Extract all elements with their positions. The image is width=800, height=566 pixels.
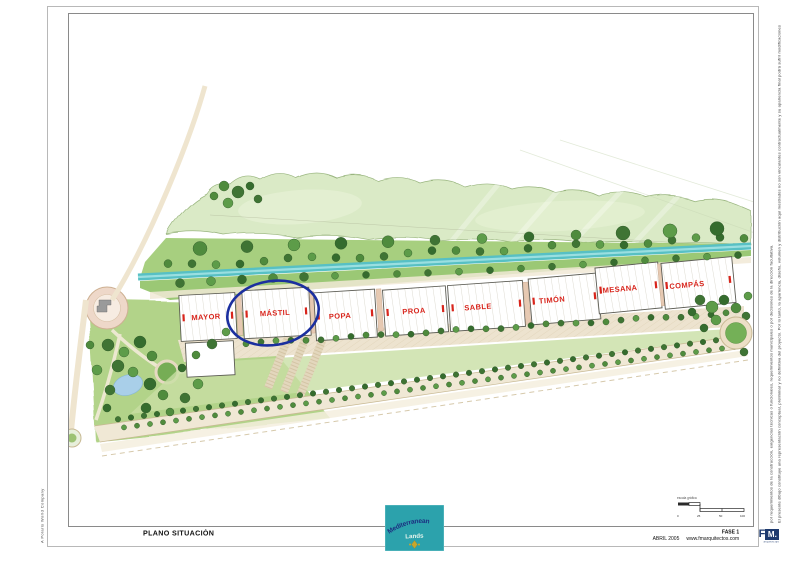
building-label-sable: SABLE [464, 302, 492, 313]
building-label-mastil: MÁSTIL [260, 308, 291, 319]
architect-logo-f: F [759, 528, 766, 540]
building-label-popa: POPA [329, 311, 352, 321]
drawing-sheet: escala gráfica 0 25 50 100 MAYOR MÁSTIL … [0, 0, 800, 566]
architect-logo-subtext: arquitectos [764, 540, 775, 545]
mediterranean-lands-logo: Mediterranean Lands [385, 505, 444, 551]
company-vertical-text: A Polaris World Company [40, 488, 45, 543]
sheet-info: FASE 1 ABRIL 2005www.fmarquitectos.com [652, 529, 739, 542]
building-label-mayor: MAYOR [191, 312, 221, 323]
building-label-proa: PROA [402, 306, 426, 317]
sheet-title: PLANO SITUACIÓN [143, 529, 214, 537]
date-label: ABRIL 2005 [652, 536, 679, 542]
disclaimer-line-2: por requerimientos de la construcción, e… [769, 245, 774, 523]
architect-logo-m: M. [765, 529, 779, 540]
drawing-frame [68, 13, 754, 527]
website-link[interactable]: www.fmarquitectos.com [686, 536, 739, 542]
architect-logo: FM. arquitectos [755, 528, 783, 552]
date-and-site: ABRIL 2005www.fmarquitectos.com [652, 536, 739, 543]
logo-text-line2: Lands [405, 533, 424, 541]
disclaimer-line-1: El presente dibujo constituye una repres… [777, 25, 782, 523]
